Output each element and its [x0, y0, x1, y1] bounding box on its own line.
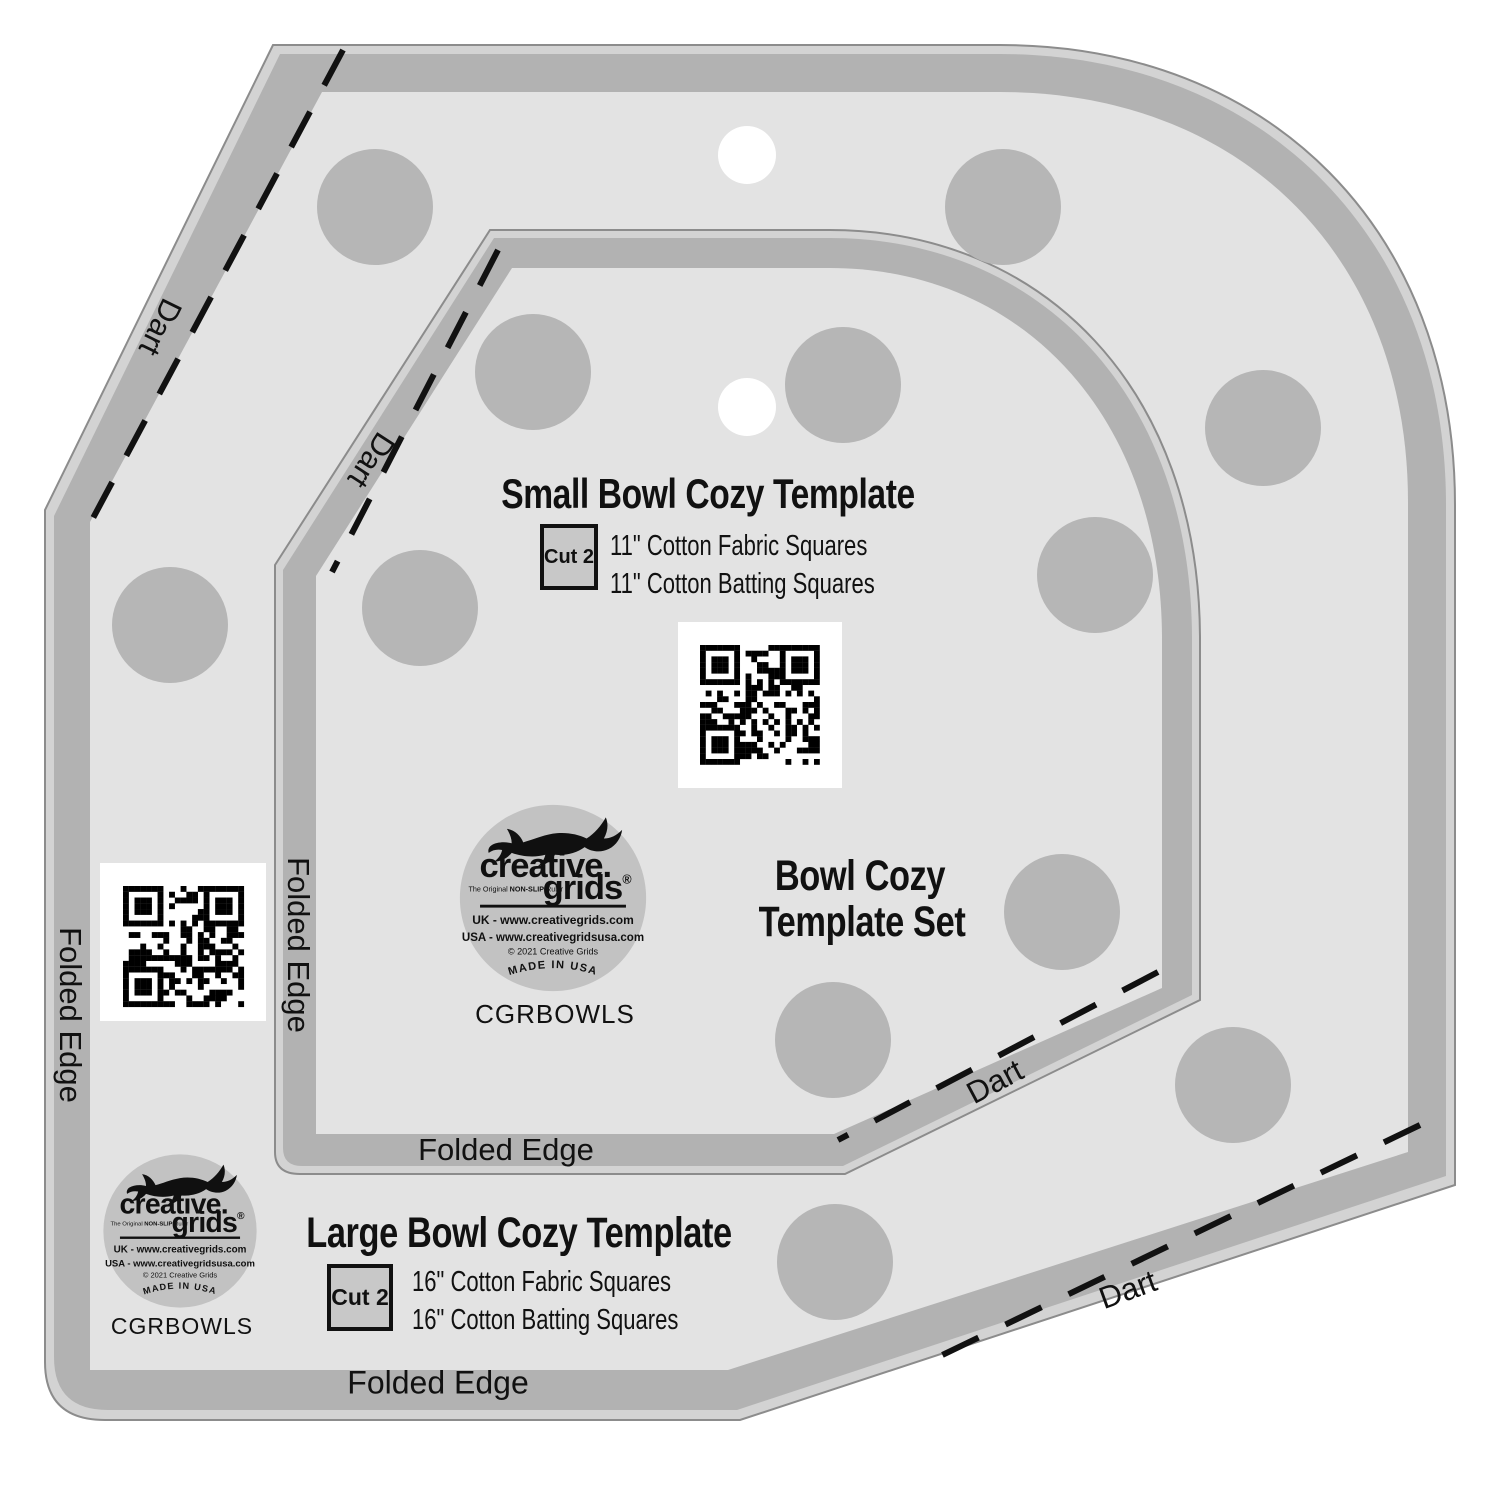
set-title-line1: Bowl Cozy: [775, 852, 945, 901]
large-folded-edge-bottom: Folded Edge: [347, 1365, 528, 1402]
small-folded-edge-left: Folded Edge: [280, 857, 316, 1033]
logo-copyright: © 2021 Creative Grids: [143, 1271, 218, 1280]
large-spec-line1: 16" Cotton Fabric Squares: [412, 1263, 678, 1301]
grip-dot: [1004, 854, 1120, 970]
grip-dot: [785, 327, 901, 443]
bowl-cozy-template-set-diagram: creative. The Original NON-SLIP Ruler gr…: [0, 0, 1499, 1500]
logo-usa-line: USA - www.creativegridsusa.com: [462, 932, 644, 944]
grip-dot: [775, 982, 891, 1098]
small-template-title: Small Bowl Cozy Template: [501, 470, 915, 518]
grip-dot: [945, 149, 1061, 265]
hang-hole-small: [718, 378, 776, 436]
large-cut2-box: Cut 2: [327, 1264, 393, 1331]
large-folded-edge-left: Folded Edge: [52, 927, 88, 1103]
small-folded-edge-bottom: Folded Edge: [418, 1132, 594, 1168]
brand-grids: grids®: [171, 1207, 245, 1239]
small-cut2-box: Cut 2: [540, 524, 598, 590]
small-template-specs: 11" Cotton Fabric Squares 11" Cotton Bat…: [610, 527, 875, 603]
grip-dot: [1037, 517, 1153, 633]
grip-dot: [777, 1204, 893, 1320]
large-spec-line2: 16" Cotton Batting Squares: [412, 1301, 678, 1339]
logo-uk-line: UK - www.creativegrids.com: [472, 913, 634, 927]
grip-dot: [1175, 1027, 1291, 1143]
small-spec-line1: 11" Cotton Fabric Squares: [610, 527, 875, 565]
brand-grids: grids®: [543, 869, 632, 907]
grip-dot: [475, 314, 591, 430]
grip-dot: [1205, 370, 1321, 486]
logo-uk-line: UK - www.creativegrids.com: [114, 1244, 247, 1255]
sku-label-small: CGRBOWLS: [475, 999, 635, 1030]
set-title-line2: Template Set: [759, 898, 966, 947]
grip-dot: [112, 567, 228, 683]
sku-label-large: CGRBOWLS: [111, 1313, 253, 1340]
creative-grids-logo: creative. The Original NON-SLIP Ruler gr…: [101, 1152, 259, 1310]
small-spec-line2: 11" Cotton Batting Squares: [610, 565, 875, 603]
grip-dot: [317, 149, 433, 265]
creative-grids-logo: creative. The Original NON-SLIP Ruler gr…: [457, 802, 649, 994]
grip-dot: [362, 550, 478, 666]
large-template-specs: 16" Cotton Fabric Squares 16" Cotton Bat…: [412, 1263, 678, 1339]
hang-hole-large: [718, 126, 776, 184]
logo-copyright: © 2021 Creative Grids: [508, 947, 599, 957]
logo-usa-line: USA - www.creativegridsusa.com: [105, 1259, 255, 1270]
large-template-title: Large Bowl Cozy Template: [306, 1209, 732, 1258]
